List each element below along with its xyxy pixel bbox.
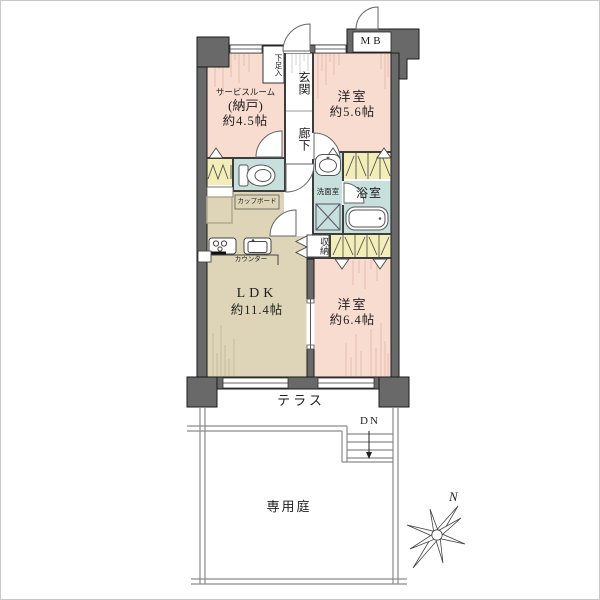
ldk-label: LDK 約11.4帖 (207, 285, 307, 318)
ldk-name: LDK (207, 285, 307, 303)
bedroom1-size: 約5.6帖 (314, 105, 391, 121)
service-room-size: 約4.5帖 (207, 114, 284, 130)
stove-icon (209, 238, 236, 255)
compass-north-label: N (449, 489, 458, 505)
down-arrow-icon (366, 431, 372, 459)
toilet-icon (239, 165, 275, 186)
entrance-door-arc (283, 24, 310, 51)
bathtub-icon (346, 207, 388, 230)
terrace-label: テラス (271, 393, 331, 409)
kitchen-sink-icon (244, 238, 271, 254)
stairs-icon (342, 426, 393, 462)
bedroom2-size: 約6.4帖 (314, 313, 391, 329)
meter-box-label: MB (353, 35, 391, 49)
ldk-size: 約11.4帖 (207, 303, 307, 319)
bedroom2-name: 洋室 (314, 297, 391, 313)
shelf-box (207, 187, 233, 197)
counter-label: カウンター (229, 256, 273, 264)
cupboard-label: カップボード (235, 198, 279, 206)
service-room-label: サービスルーム (納戸) 約4.5帖 (207, 87, 284, 130)
shoe-cabinet-label: 下足入 (264, 49, 283, 81)
entrance-label: 玄関 (285, 55, 311, 111)
washroom-label: 洗面室 (314, 187, 342, 196)
bedroom1-name: 洋室 (314, 89, 391, 105)
stairs-down-label: DN (353, 415, 387, 429)
bathroom-label: 浴室 (347, 186, 391, 201)
pass-through-box (198, 251, 211, 262)
hallway-label: 廊下 (285, 119, 311, 159)
storage-label: 収納 (307, 236, 329, 256)
garden-label: 専用庭 (257, 499, 321, 515)
service-room-name: サービスルーム (207, 87, 284, 98)
floor-plan-page: サービスルーム (納戸) 約4.5帖 洋室 約5.6帖 洋室 約6.4帖 LDK… (0, 0, 600, 600)
meter-box-door-arc (356, 7, 378, 29)
compass-rose-icon (407, 506, 465, 568)
washbasin-icon (316, 155, 341, 176)
bedroom2-label: 洋室 約6.4帖 (314, 297, 391, 329)
service-room-sub: (納戸) (207, 98, 284, 114)
bedroom1-label: 洋室 約5.6帖 (314, 89, 391, 121)
